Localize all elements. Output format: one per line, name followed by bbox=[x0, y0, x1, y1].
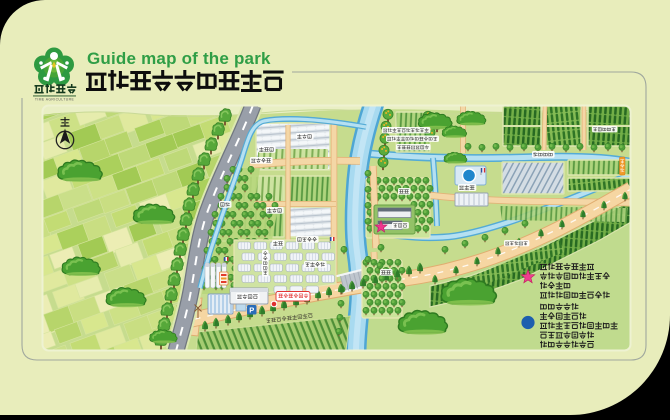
svg-text:P: P bbox=[249, 306, 254, 315]
svg-text:TIME AGRICULTURE: TIME AGRICULTURE bbox=[35, 98, 75, 102]
svg-text:Guide map of the park: Guide map of the park bbox=[87, 49, 271, 68]
